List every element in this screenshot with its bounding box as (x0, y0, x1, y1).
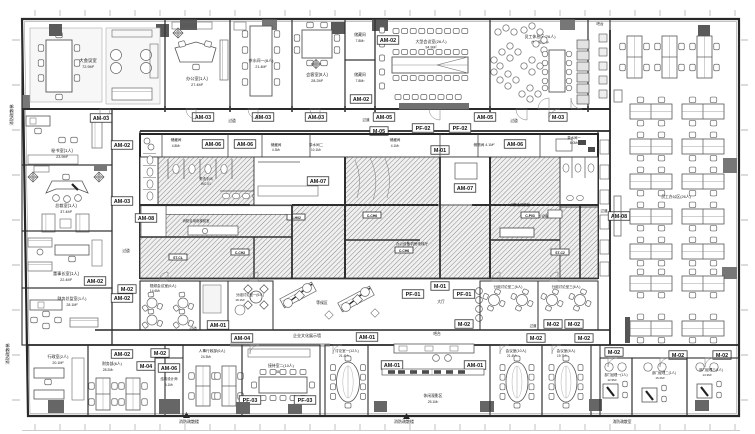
svg-text:过道: 过道 (600, 208, 608, 213)
svg-text:大型会议室(26人): 大型会议室(26人) (415, 38, 447, 44)
svg-text:22.4M²: 22.4M² (60, 278, 73, 282)
svg-text:茶水间一: 茶水间一 (567, 135, 581, 140)
svg-text:AM-06: AM-06 (205, 142, 221, 148)
svg-text:消防合用电梯前室: 消防合用电梯前室 (182, 218, 210, 223)
svg-text:14.3M²: 14.3M² (702, 373, 711, 377)
svg-text:4.1M²: 4.1M² (391, 144, 400, 148)
svg-text:16.2M²: 16.2M² (655, 376, 664, 380)
svg-text:财务总监室(1人): 财务总监室(1人) (58, 295, 88, 301)
svg-text:M-02: M-02 (530, 336, 542, 342)
svg-text:12.9M²: 12.9M² (607, 378, 616, 382)
svg-text:过道: 过道 (122, 248, 130, 253)
svg-text:M-02: M-02 (121, 287, 133, 293)
svg-text:C-CH6: C-CH6 (399, 249, 409, 253)
svg-text:茶水间一(8人): 茶水间一(8人) (249, 57, 275, 63)
svg-text:分组讨论室一(6人): 分组讨论室一(6人) (236, 292, 264, 297)
svg-text:21.4M²: 21.4M² (255, 65, 267, 69)
svg-text:大厅: 大厅 (437, 299, 445, 304)
svg-text:人事行政部(6人): 人事行政部(6人) (199, 348, 226, 353)
svg-text:储藏间: 储藏间 (354, 32, 366, 37)
svg-text:储藏间: 储藏间 (390, 137, 401, 142)
svg-text:20.1M²: 20.1M² (52, 361, 64, 365)
svg-text:AM-06: AM-06 (161, 366, 177, 372)
svg-text:过道: 过道 (510, 118, 518, 123)
svg-text:部门经理二(1人): 部门经理二(1人) (652, 370, 676, 375)
svg-text:AM-03: AM-03 (308, 115, 324, 121)
svg-text:72.9M²: 72.9M² (82, 65, 95, 69)
svg-text:企业文化展示墙: 企业文化展示墙 (293, 332, 321, 338)
svg-text:部门经理一(1人): 部门经理一(1人) (604, 372, 627, 377)
svg-text:消防疏散楼: 消防疏散楼 (179, 418, 199, 424)
svg-text:储藏间: 储藏间 (271, 142, 282, 147)
svg-text:AM-03: AM-03 (195, 115, 211, 121)
svg-text:AM-02: AM-02 (353, 97, 369, 103)
svg-text:过道: 过道 (189, 326, 197, 331)
svg-text:M-02: M-02 (608, 350, 620, 356)
svg-text:AM-06: AM-06 (237, 142, 253, 148)
svg-text:AM-02: AM-02 (380, 38, 396, 44)
svg-text:部门经理三(1人): 部门经理三(1人) (699, 367, 723, 372)
svg-text:董事长室(1人): 董事长室(1人) (53, 270, 80, 277)
svg-text:消防疏散楼: 消防疏散楼 (394, 418, 414, 424)
svg-text:分组讨论室二(6人): 分组讨论室二(6人) (494, 284, 523, 289)
svg-text:吧台: 吧台 (433, 331, 441, 336)
svg-text:4.1M²: 4.1M² (165, 383, 173, 387)
svg-text:18.1M²: 18.1M² (235, 298, 244, 302)
svg-text:会客室(8人): 会客室(8人) (306, 71, 328, 78)
svg-text:AM-07: AM-07 (310, 179, 326, 185)
svg-text:C-CH2: C-CH2 (235, 251, 245, 255)
svg-text:M-01: M-01 (434, 284, 446, 290)
svg-text:PF-02: PF-02 (453, 126, 468, 132)
svg-text:办公设备机房电梯厅: 办公设备机房电梯厅 (396, 241, 429, 246)
svg-text:PF-02: PF-02 (416, 126, 431, 132)
svg-text:消防疏散室: 消防疏散室 (613, 419, 632, 424)
svg-text:AM-05: AM-05 (477, 115, 493, 121)
svg-text:财务部(6人): 财务部(6人) (102, 361, 123, 366)
svg-text:C-P03: C-P03 (525, 214, 535, 218)
svg-text:行政室(2人): 行政室(2人) (48, 353, 70, 359)
svg-text:讨论室一(12人): 讨论室一(12人) (335, 348, 359, 353)
svg-text:茶水间二: 茶水间二 (309, 142, 324, 147)
svg-text:储物间 4.1M²: 储物间 4.1M² (474, 142, 496, 147)
svg-text:大会议室: 大会议室 (79, 57, 97, 64)
svg-text:AM-01: AM-01 (384, 363, 400, 369)
svg-text:接待室二(10人): 接待室二(10人) (268, 363, 294, 368)
svg-text:7.8M²: 7.8M² (356, 79, 366, 83)
svg-text:会议室(10人): 会议室(10人) (506, 348, 527, 353)
svg-text:视频会议室(6人): 视频会议室(6人) (150, 283, 177, 288)
svg-text:7.8M²: 7.8M² (356, 39, 366, 43)
svg-text:AM-02: AM-02 (114, 296, 130, 302)
svg-text:过道: 过道 (362, 117, 370, 122)
svg-text:AM-02: AM-02 (114, 143, 130, 149)
svg-text:M-02: M-02 (578, 336, 590, 342)
svg-text:过道: 过道 (530, 323, 537, 328)
svg-text:消防疏散梯: 消防疏散梯 (8, 105, 15, 126)
svg-text:等候区: 等候区 (316, 300, 328, 305)
svg-text:AM-01: AM-01 (210, 323, 226, 329)
svg-text:M-04: M-04 (140, 364, 152, 370)
svg-text:PF-01: PF-01 (406, 292, 421, 298)
svg-text:4.8M²: 4.8M² (172, 144, 181, 148)
svg-text:会议室(8人): 会议室(8人) (557, 348, 576, 353)
svg-text:4.3M²: 4.3M² (272, 148, 280, 152)
svg-text:储藏间: 储藏间 (354, 72, 366, 77)
svg-text:10.1M²: 10.1M² (311, 148, 321, 152)
svg-text:总裁室(1人): 总裁室(1人) (55, 202, 77, 209)
svg-text:AM-01: AM-01 (359, 335, 375, 341)
svg-text:ST-CL: ST-CL (173, 256, 183, 260)
svg-text:AM-04: AM-04 (234, 336, 250, 342)
svg-text:过道: 过道 (228, 118, 236, 123)
svg-text:AM-01: AM-01 (467, 363, 483, 369)
svg-text:M-02: M-02 (458, 322, 470, 328)
svg-text:23.9M²: 23.9M² (56, 155, 69, 159)
svg-text:ST-C2: ST-C2 (555, 251, 565, 255)
svg-text:AM-05: AM-05 (376, 115, 392, 121)
svg-text:AM-02: AM-02 (87, 279, 103, 285)
svg-text:吧台: 吧台 (596, 21, 604, 26)
svg-text:6.0M²: 6.0M² (570, 141, 578, 145)
svg-text:C-CH6: C-CH6 (367, 214, 377, 218)
svg-text:AM-03: AM-03 (255, 115, 271, 121)
svg-text:28.2M²: 28.2M² (103, 368, 114, 372)
svg-text:结构设计师: 结构设计师 (161, 376, 179, 381)
svg-text:PF-01: PF-01 (457, 292, 472, 298)
svg-text:M-02: M-02 (547, 322, 559, 328)
svg-text:员工办公区(26人): 员工办公区(26人) (661, 194, 691, 199)
svg-text:消防疏散梯: 消防疏散梯 (4, 344, 11, 365)
svg-text:办公室(1人): 办公室(1人) (186, 75, 208, 82)
svg-text:储藏间: 储藏间 (171, 137, 182, 142)
svg-text:M-03: M-03 (552, 115, 564, 121)
svg-text:秘书室(1人): 秘书室(1人) (51, 147, 73, 154)
svg-text:25.1M²: 25.1M² (428, 400, 439, 404)
svg-text:M-02: M-02 (154, 351, 166, 357)
svg-text:28.1M²: 28.1M² (66, 303, 78, 307)
svg-text:AM-08: AM-08 (138, 216, 154, 222)
svg-text:WC-01: WC-01 (201, 182, 211, 186)
svg-text:28.2M²: 28.2M² (311, 79, 324, 83)
svg-text:M-02: M-02 (568, 322, 580, 328)
svg-text:AM-07: AM-07 (457, 186, 473, 192)
svg-text:PF-03: PF-03 (298, 398, 313, 404)
svg-text:AM-08: AM-08 (611, 214, 627, 220)
svg-text:AM-02: AM-02 (114, 352, 130, 358)
svg-text:休闲观影区: 休闲观影区 (424, 393, 443, 398)
svg-text:27.4M²: 27.4M² (191, 83, 204, 87)
svg-text:94.9M²: 94.9M² (425, 46, 437, 50)
svg-text:消防合用前室: 消防合用前室 (510, 202, 529, 207)
svg-text:AM-03: AM-03 (114, 199, 130, 205)
svg-text:分组讨论室三(6人): 分组讨论室三(6人) (552, 284, 581, 289)
svg-text:AM-06: AM-06 (507, 142, 523, 148)
svg-text:24.3M²: 24.3M² (201, 355, 212, 359)
svg-text:37.4M²: 37.4M² (60, 210, 73, 214)
svg-text:男洗手间: 男洗手间 (199, 176, 213, 181)
